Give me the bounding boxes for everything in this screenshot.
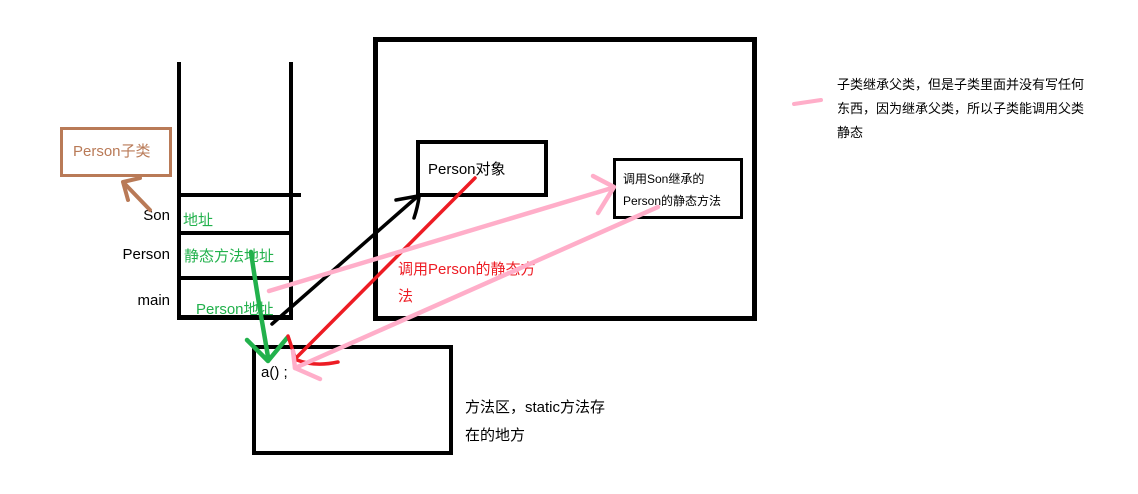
red-annotation-line1: 调用Person的静态方 bbox=[398, 256, 536, 283]
stack-row-value-son: 地址 bbox=[183, 209, 213, 230]
person-object-box: Person对象 bbox=[416, 140, 548, 197]
person-subclass-label: Person子类 bbox=[73, 143, 151, 160]
stack-row-label-person: Person bbox=[100, 246, 170, 263]
stack-divider bbox=[177, 231, 293, 235]
method-area-box: a() ; bbox=[252, 345, 453, 455]
method-statement: a() ; bbox=[261, 364, 288, 381]
side-note: 子类继承父类，但是子类里面并没有写任何 东西，因为继承父类，所以子类能调用父类 … bbox=[837, 73, 1137, 145]
brown-arrow-son-to-subclass bbox=[123, 178, 150, 210]
diagram-canvas: Person子类 Son Person main 地址 静态方法地址 Perso… bbox=[0, 0, 1138, 494]
red-annotation: 调用Person的静态方 法 bbox=[398, 256, 536, 310]
method-area-caption-line1: 方法区，static方法存 bbox=[465, 394, 605, 422]
stack-row-label-main: main bbox=[100, 292, 170, 309]
son-static-call-box: 调用Son继承的 Person的静态方法 bbox=[613, 158, 743, 219]
red-annotation-line2: 法 bbox=[398, 283, 536, 310]
side-note-line1: 子类继承父类，但是子类里面并没有写任何 bbox=[837, 73, 1137, 97]
son-static-call-line2: Person的静态方法 bbox=[623, 190, 740, 212]
side-note-line3: 静态 bbox=[837, 121, 1137, 145]
stack-row-value-main: Person地址 bbox=[196, 298, 274, 319]
stack-frame bbox=[177, 62, 293, 320]
stack-divider bbox=[177, 276, 293, 280]
side-note-line2: 东西，因为继承父类，所以子类能调用父类 bbox=[837, 97, 1137, 121]
stack-row-label-son: Son bbox=[100, 207, 170, 224]
son-static-call-line1: 调用Son继承的 bbox=[623, 168, 740, 190]
stack-divider bbox=[177, 193, 301, 197]
pink-note-dash bbox=[794, 100, 821, 104]
person-subclass-box: Person子类 bbox=[60, 127, 172, 177]
person-object-label: Person对象 bbox=[428, 158, 506, 179]
stack-row-value-person: 静态方法地址 bbox=[184, 245, 274, 266]
method-area-caption-line2: 在的地方 bbox=[465, 422, 605, 450]
method-area-caption: 方法区，static方法存 在的地方 bbox=[465, 394, 605, 450]
